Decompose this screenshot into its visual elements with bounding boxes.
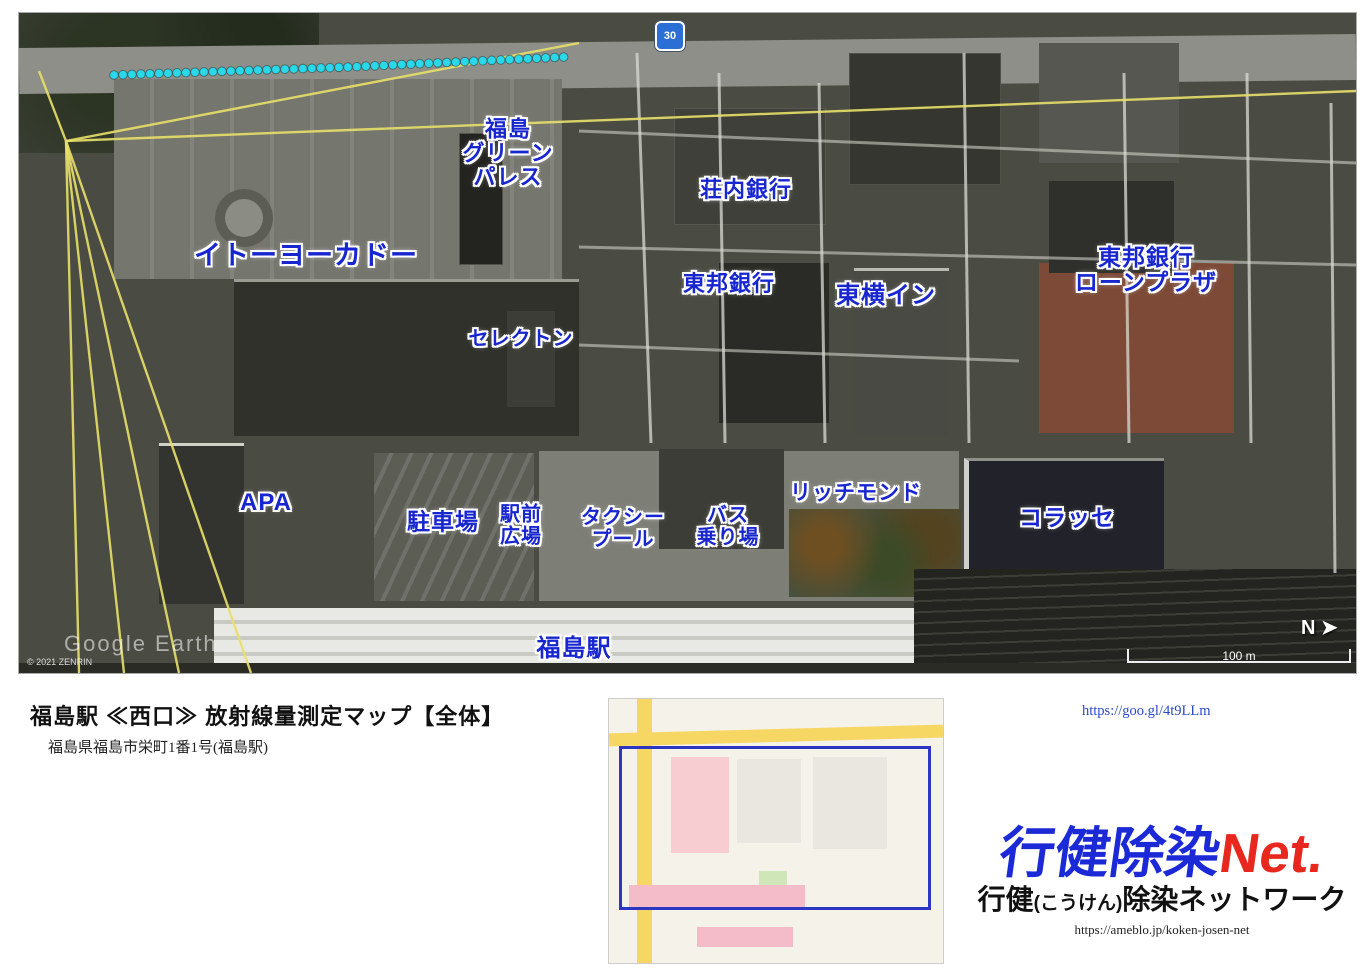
place-label: リッチモンド <box>790 483 922 506</box>
place-label: コラッセ <box>1019 506 1115 531</box>
city-block-3 <box>1039 43 1179 163</box>
place-label: タクシー プール <box>581 507 665 550</box>
apa-building <box>159 443 244 604</box>
aerial-photo-map: 30 Google Earth © 2021 ZENRIN 100 m N ➤ … <box>18 12 1357 674</box>
place-label: APA <box>240 490 292 516</box>
place-label: 東横イン <box>836 283 936 309</box>
qr-code <box>1261 699 1353 791</box>
round-structure <box>215 189 273 247</box>
place-label: 福島 グリーン パレス <box>463 117 554 188</box>
inset-block-pink2 <box>697 927 793 947</box>
inset-street-map <box>608 698 944 964</box>
place-label: 荘内銀行 <box>700 178 792 202</box>
rail-tracks-bottom <box>19 663 1356 673</box>
poster-title: 福島駅 ≪西口≫ 放射線量測定マップ【全体】 <box>30 699 504 731</box>
copyright-zenrin: © 2021 ZENRIN <box>27 657 92 667</box>
place-label: イトーヨーカドー <box>194 241 418 270</box>
place-label: セレクトン <box>469 329 574 351</box>
inset-road-yellow-h <box>609 725 943 747</box>
contact-url: https://goo.gl/4t9LLm <box>1082 703 1262 720</box>
logo-subtitle: 行健(こうけん)除染ネットワーク <box>962 885 1362 916</box>
place-label: 駐車場 <box>407 510 479 535</box>
place-label: バス 乗り場 <box>697 505 760 548</box>
watermark-google-earth: Google Earth <box>64 631 218 657</box>
inset-survey-frame <box>619 746 931 910</box>
logo-koken-josen-net: 行健除染Net. <box>996 826 1328 881</box>
speed-limit-sign: 30 <box>655 21 685 51</box>
city-block-2 <box>849 53 1001 185</box>
place-label: 東邦銀行 <box>683 272 775 296</box>
branding-url: https://ameblo.jp/koken-josen-net <box>962 922 1362 938</box>
place-label: 福島駅 <box>537 636 612 662</box>
place-label: 駅前 広場 <box>500 504 542 547</box>
north-arrow-icon: N ➤ <box>1301 615 1338 640</box>
selecton-building <box>507 311 555 407</box>
place-label: 東邦銀行 ローンプラザ <box>1075 245 1217 295</box>
scale-bar: 100 m <box>1127 649 1351 663</box>
branding-block: 行健除染Net. 行健(こうけん)除染ネットワーク https://ameblo… <box>962 826 1362 938</box>
radiation-map-poster: { "map": { "speed_sign": "30", "scale_la… <box>0 0 1371 969</box>
poster-address: 福島県福島市栄町1番1号(福島駅) <box>48 736 268 757</box>
contact-block: https://goo.gl/4t9LLm <box>1082 701 1262 720</box>
city-block-1 <box>674 108 826 225</box>
